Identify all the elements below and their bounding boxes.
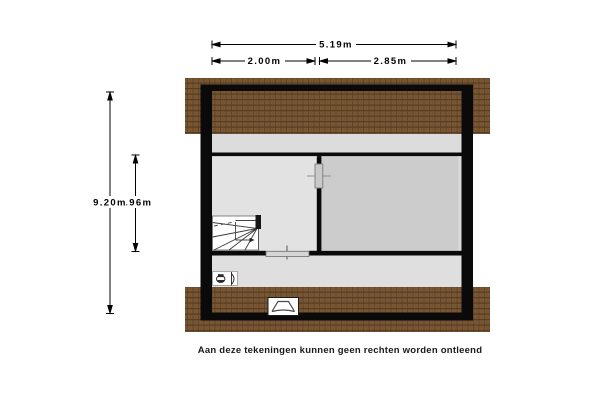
- svg-text:5.19m: 5.19m: [319, 40, 353, 51]
- svg-text:2.00m: 2.00m: [248, 56, 282, 67]
- svg-text:9.20m: 9.20m: [93, 198, 127, 209]
- svg-text:2.85m: 2.85m: [374, 56, 408, 67]
- svg-text:Aan deze tekeningen kunnen gee: Aan deze tekeningen kunnen geen rechten …: [198, 345, 483, 356]
